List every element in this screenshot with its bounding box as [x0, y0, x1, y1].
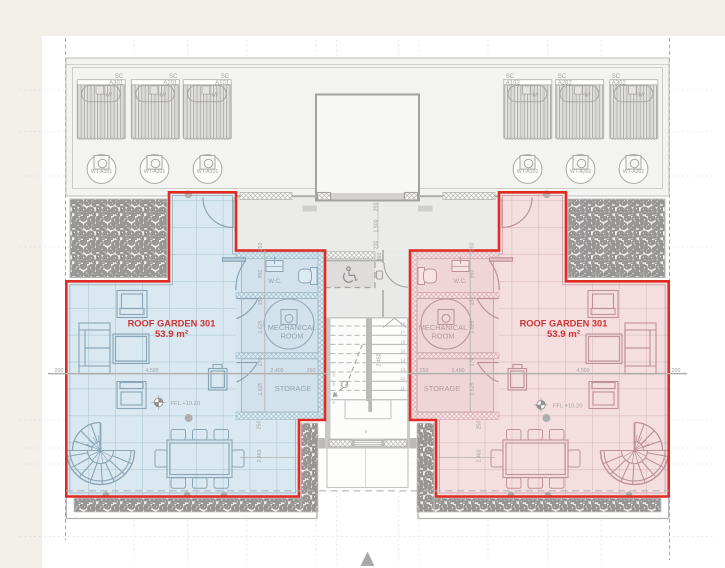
- svg-text:53.9 m²: 53.9 m²: [155, 329, 188, 340]
- svg-text:SC: SC: [115, 74, 124, 80]
- svg-text:A202: A202: [558, 80, 573, 86]
- svg-text:A302: A302: [612, 80, 627, 86]
- svg-text:15: 15: [401, 349, 406, 354]
- svg-text:250: 250: [374, 203, 380, 212]
- svg-text:SC: SC: [221, 74, 230, 80]
- svg-text:16: 16: [401, 339, 406, 344]
- svg-text:1.625: 1.625: [258, 320, 264, 333]
- svg-text:WT-A202: WT-A202: [570, 169, 592, 175]
- svg-text:200: 200: [672, 368, 681, 374]
- svg-text:250: 250: [477, 421, 483, 430]
- svg-text:11: 11: [401, 385, 406, 390]
- svg-text:4.500: 4.500: [577, 368, 590, 374]
- svg-text:14: 14: [401, 358, 406, 363]
- svg-text:4.500: 4.500: [146, 368, 159, 374]
- svg-text:A102: A102: [506, 80, 521, 86]
- svg-text:2.450: 2.450: [377, 353, 383, 366]
- svg-text:WT-A201: WT-A201: [144, 169, 166, 175]
- svg-text:SC: SC: [169, 74, 178, 80]
- svg-text:WT-A101: WT-A101: [197, 169, 219, 175]
- svg-text:150: 150: [258, 297, 264, 306]
- svg-text:SC: SC: [558, 74, 567, 80]
- svg-text:200: 200: [55, 368, 64, 374]
- svg-text:170: 170: [258, 358, 264, 367]
- svg-text:2.463: 2.463: [477, 449, 483, 462]
- svg-text:230: 230: [374, 241, 380, 250]
- svg-text:2.400: 2.400: [271, 368, 284, 374]
- svg-text:FFL +10.20: FFL +10.20: [171, 401, 201, 407]
- svg-text:12: 12: [401, 376, 406, 381]
- svg-text:FFL +10.20: FFL +10.20: [553, 403, 583, 409]
- svg-text:53.9 m²: 53.9 m²: [547, 329, 580, 340]
- svg-text:250: 250: [257, 421, 263, 430]
- svg-text:18: 18: [401, 321, 406, 326]
- svg-text:W.C.: W.C.: [453, 278, 467, 285]
- svg-text:WT-A302: WT-A302: [623, 169, 645, 175]
- svg-text:SC: SC: [612, 74, 621, 80]
- svg-text:A101: A101: [215, 80, 230, 86]
- svg-text:ROOF GARDEN 301: ROOF GARDEN 301: [128, 319, 216, 329]
- svg-text:STORAGE: STORAGE: [424, 384, 461, 393]
- svg-text:W.C.: W.C.: [268, 278, 282, 285]
- svg-text:250: 250: [307, 368, 316, 374]
- svg-text:ROOM: ROOM: [432, 332, 455, 341]
- svg-text:WT-A301: WT-A301: [91, 169, 113, 175]
- svg-text:250: 250: [258, 243, 264, 252]
- svg-text:ROOM: ROOM: [281, 332, 304, 341]
- svg-text:250: 250: [420, 368, 429, 374]
- svg-text:A201: A201: [163, 80, 178, 86]
- svg-text:2.400: 2.400: [452, 368, 465, 374]
- svg-text:ROOF GARDEN 301: ROOF GARDEN 301: [520, 319, 608, 329]
- svg-text:SC: SC: [506, 74, 515, 80]
- svg-text:17: 17: [401, 330, 406, 335]
- svg-text:860: 860: [377, 253, 383, 262]
- svg-text:STORAGE: STORAGE: [275, 384, 312, 393]
- svg-text:1.500: 1.500: [374, 219, 380, 232]
- svg-text:WT-A102: WT-A102: [517, 169, 539, 175]
- svg-text:2.463: 2.463: [257, 449, 263, 462]
- svg-text:950: 950: [258, 270, 264, 279]
- svg-text:A301: A301: [109, 80, 124, 86]
- svg-text:1.625: 1.625: [258, 382, 264, 395]
- svg-text:13: 13: [401, 367, 406, 372]
